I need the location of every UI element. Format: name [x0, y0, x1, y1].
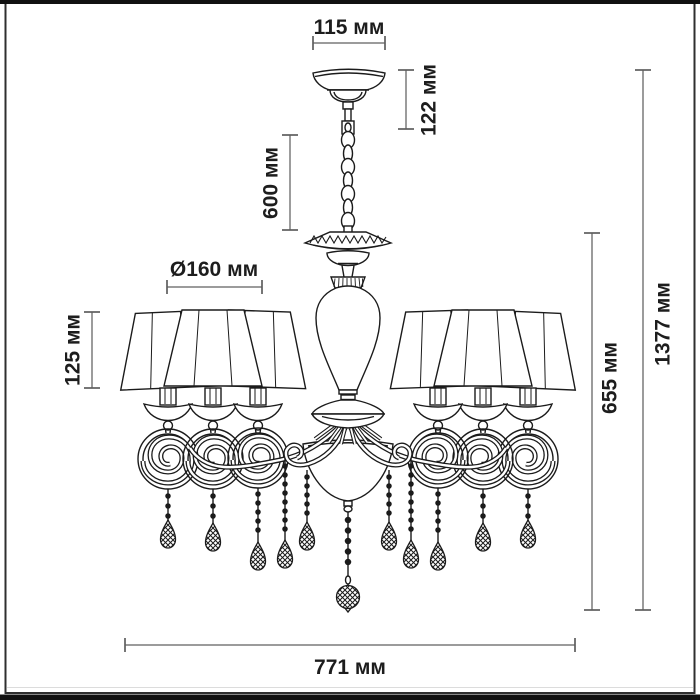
central-pendant — [337, 512, 360, 612]
dim-label-chain-length: 600 мм — [260, 147, 283, 219]
dimension-canopy-width: 115 мм — [313, 16, 385, 50]
hub-disc — [312, 400, 384, 428]
pendant-ball — [337, 586, 360, 609]
candle-cup-outer — [144, 388, 192, 433]
lampshade-middle — [164, 310, 262, 386]
dimension-shade-height: 125 мм — [62, 312, 101, 388]
ceiling-canopy — [313, 69, 385, 102]
product-dimension-diagram: 115 мм 122 мм 600 мм Ø160 мм 125 мм 655 … — [0, 0, 700, 700]
dim-label-total-width: 771 мм — [314, 656, 386, 679]
dim-label-body-height: 655 мм — [599, 342, 622, 414]
hanger-stem — [342, 102, 354, 134]
candle-cup-inner — [234, 388, 282, 433]
dim-label-shade-height: 125 мм — [62, 314, 85, 386]
stem-cup — [327, 251, 369, 288]
vase-body — [316, 286, 380, 400]
pendant-drop — [251, 542, 266, 570]
pendant-drop — [278, 540, 293, 568]
dim-label-shade-diameter: Ø160 мм — [170, 258, 258, 281]
dimension-total-width: 771 мм — [125, 638, 575, 679]
suspension-chain — [342, 132, 355, 234]
dim-label-canopy-height: 122 мм — [418, 64, 441, 136]
arm-assembly-right — [351, 309, 579, 570]
dim-label-canopy-width: 115 мм — [314, 16, 385, 39]
dimension-total-height: 1377 мм — [635, 70, 675, 610]
bottom-edge-band — [0, 695, 700, 700]
arm-assembly-left — [117, 309, 345, 570]
dimension-chain-length: 600 мм — [260, 135, 299, 230]
dim-label-total-height: 1377 мм — [652, 282, 675, 366]
dimension-shade-diameter: Ø160 мм — [167, 258, 262, 294]
pendant-drop — [161, 520, 176, 548]
pendant-drop — [206, 523, 221, 551]
top-edge-band — [0, 0, 700, 4]
ring-scroll-outer — [138, 429, 198, 489]
central-bowl — [303, 440, 393, 512]
dimension-body-height: 655 мм — [584, 233, 622, 610]
ornate-collar-plate — [305, 232, 391, 249]
dimension-canopy-height: 122 мм — [398, 64, 441, 136]
candle-cup-middle — [189, 388, 237, 433]
pendant-drop — [300, 522, 315, 550]
diagram-canvas: 115 мм 122 мм 600 мм Ø160 мм 125 мм 655 … — [0, 0, 700, 700]
